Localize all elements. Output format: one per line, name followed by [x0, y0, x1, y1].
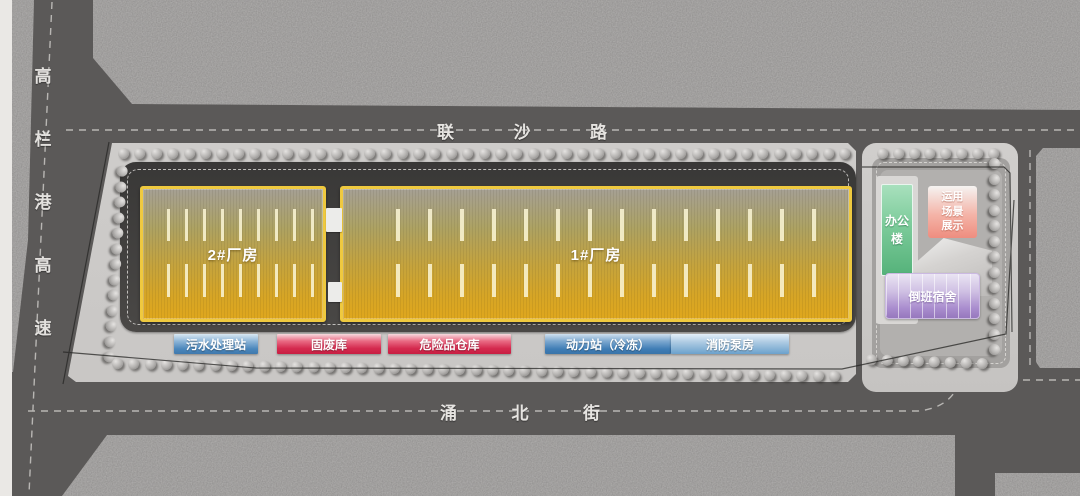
road-char: 港 — [35, 188, 52, 213]
facility-label: 固废库 — [311, 336, 347, 353]
factory-building-2: 2#厂房 — [140, 186, 326, 322]
road-label-liansha-road: 联 沙 路 — [437, 118, 607, 143]
factory-1-label: 1#厂房 — [571, 244, 622, 265]
facility-solid-waste-warehouse: 固废库 — [277, 334, 381, 354]
road-char: 北 — [512, 399, 529, 424]
facility-power-station-refrigeration: 动力站（冷冻） — [545, 334, 671, 354]
road-char: 沙 — [514, 118, 531, 143]
office-label: 办公楼 — [884, 212, 910, 248]
factory-connector — [328, 282, 342, 302]
facility-hazardous-goods-warehouse: 危险品仓库 — [388, 334, 511, 354]
road-char: 高 — [35, 251, 52, 276]
skylight-row — [152, 209, 316, 242]
skylight-row — [368, 264, 828, 297]
scene-display-line: 运用 — [942, 190, 964, 205]
facility-label: 动力站（冷冻） — [566, 336, 650, 353]
road-char: 高 — [35, 62, 52, 87]
road-char: 街 — [583, 399, 600, 424]
factory-2-label: 2#厂房 — [208, 244, 259, 265]
facility-label: 危险品仓库 — [419, 336, 479, 353]
dormitory-building: 倒班宿舍 — [885, 273, 980, 319]
office-building: 办公楼 — [881, 184, 913, 276]
site-plan-canvas: 高 栏 港 高 速 联 沙 路 涌 北 街 2#厂房 1#厂房 办公楼 运用 场… — [0, 0, 1080, 496]
facility-label: 污水处理站 — [186, 336, 246, 353]
scene-display-area: 运用 场景 展示 — [928, 186, 977, 238]
factory-connector — [326, 208, 342, 232]
facility-sewage-treatment-station: 污水处理站 — [174, 334, 258, 354]
facility-label: 消防泵房 — [706, 336, 754, 353]
skylight-row — [368, 209, 828, 242]
road-char: 联 — [437, 118, 454, 143]
road-label-yongbei-street: 涌 北 街 — [440, 399, 600, 424]
map-edge-strip — [0, 0, 12, 496]
factory-building-1: 1#厂房 — [340, 186, 852, 322]
road-char: 涌 — [440, 399, 457, 424]
scene-display-line: 场景 — [942, 205, 964, 220]
road-label-gaolangang-expressway: 高 栏 港 高 速 — [30, 62, 56, 339]
road-char: 速 — [35, 314, 52, 339]
road-char: 栏 — [35, 125, 52, 150]
dormitory-label: 倒班宿舍 — [908, 288, 956, 305]
scene-display-line: 展示 — [942, 219, 964, 234]
facility-fire-pump-room: 消防泵房 — [671, 334, 789, 354]
skylight-row — [152, 264, 316, 297]
road-char: 路 — [590, 118, 607, 143]
